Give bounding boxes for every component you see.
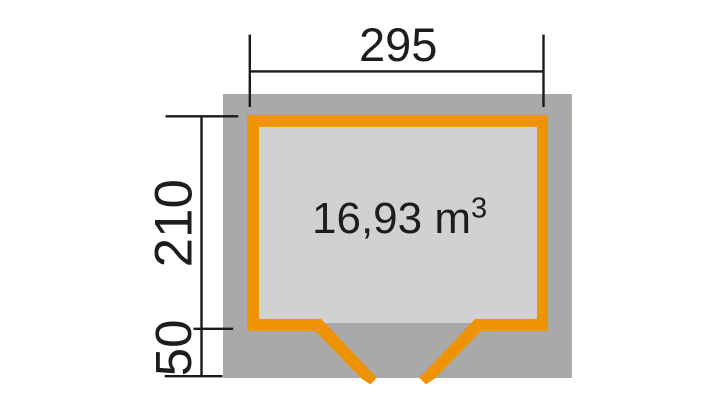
svg-text:295: 295	[359, 18, 437, 71]
svg-text:50: 50	[145, 320, 202, 377]
svg-text:16,93 m3: 16,93 m3	[312, 193, 487, 244]
svg-text:210: 210	[144, 179, 203, 267]
